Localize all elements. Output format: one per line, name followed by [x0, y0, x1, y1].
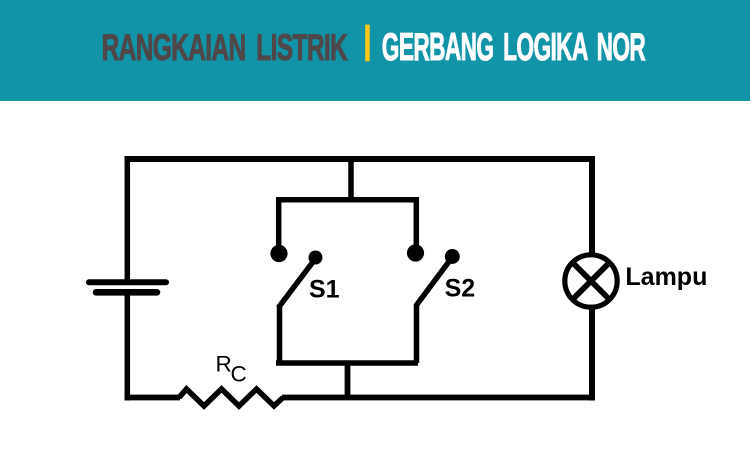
svg-text:S1: S1 [309, 275, 340, 303]
svg-text:Lampu: Lampu [625, 263, 707, 291]
svg-text:C: C [231, 361, 247, 386]
svg-text:R: R [216, 352, 232, 377]
svg-text:S2: S2 [445, 275, 476, 303]
svg-text:RANGKAIAN LISTRIK: RANGKAIAN LISTRIK [102, 26, 348, 68]
svg-text:GERBANG LOGIKA NOR: GERBANG LOGIKA NOR [382, 26, 646, 69]
